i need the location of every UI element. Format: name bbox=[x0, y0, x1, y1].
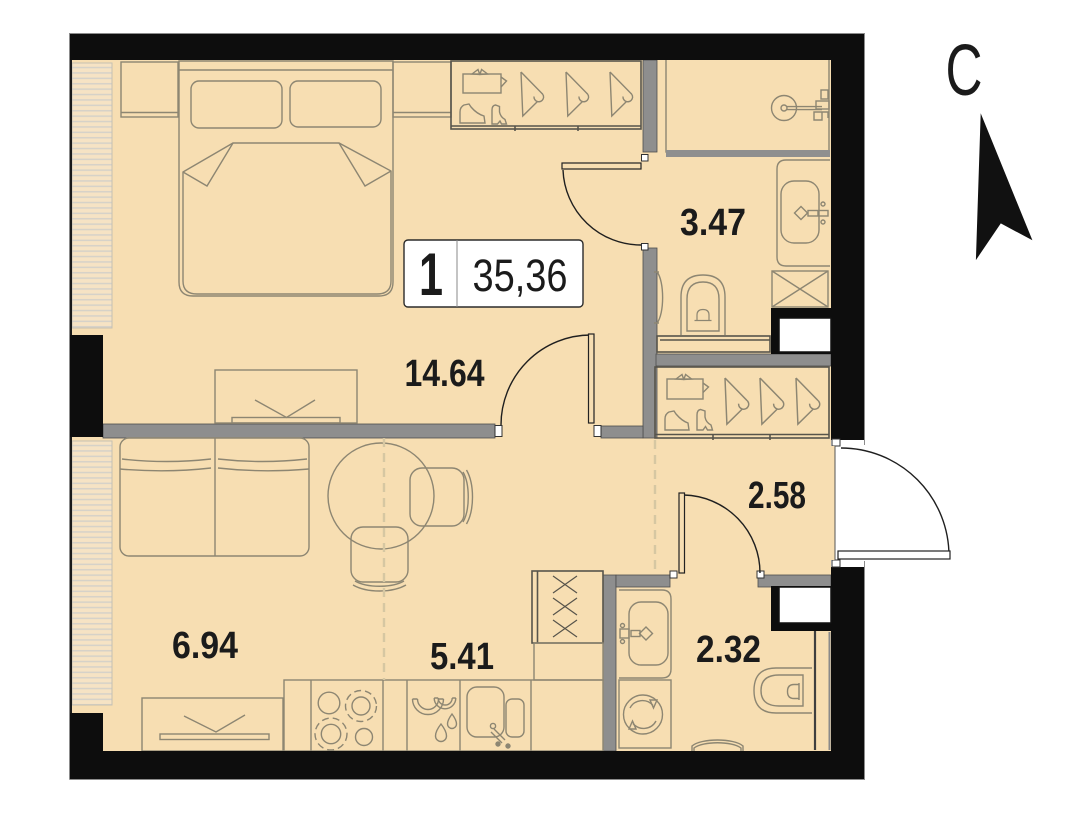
svg-text:2.58: 2.58 bbox=[748, 475, 806, 517]
svg-text:1: 1 bbox=[419, 241, 443, 308]
svg-text:С: С bbox=[946, 31, 983, 111]
svg-text:14.64: 14.64 bbox=[405, 353, 485, 395]
svg-text:6.94: 6.94 bbox=[172, 625, 238, 667]
svg-text:3.47: 3.47 bbox=[680, 202, 746, 244]
svg-text:2.32: 2.32 bbox=[696, 629, 761, 671]
svg-text:35,36: 35,36 bbox=[473, 250, 568, 301]
svg-text:5.41: 5.41 bbox=[430, 636, 494, 678]
